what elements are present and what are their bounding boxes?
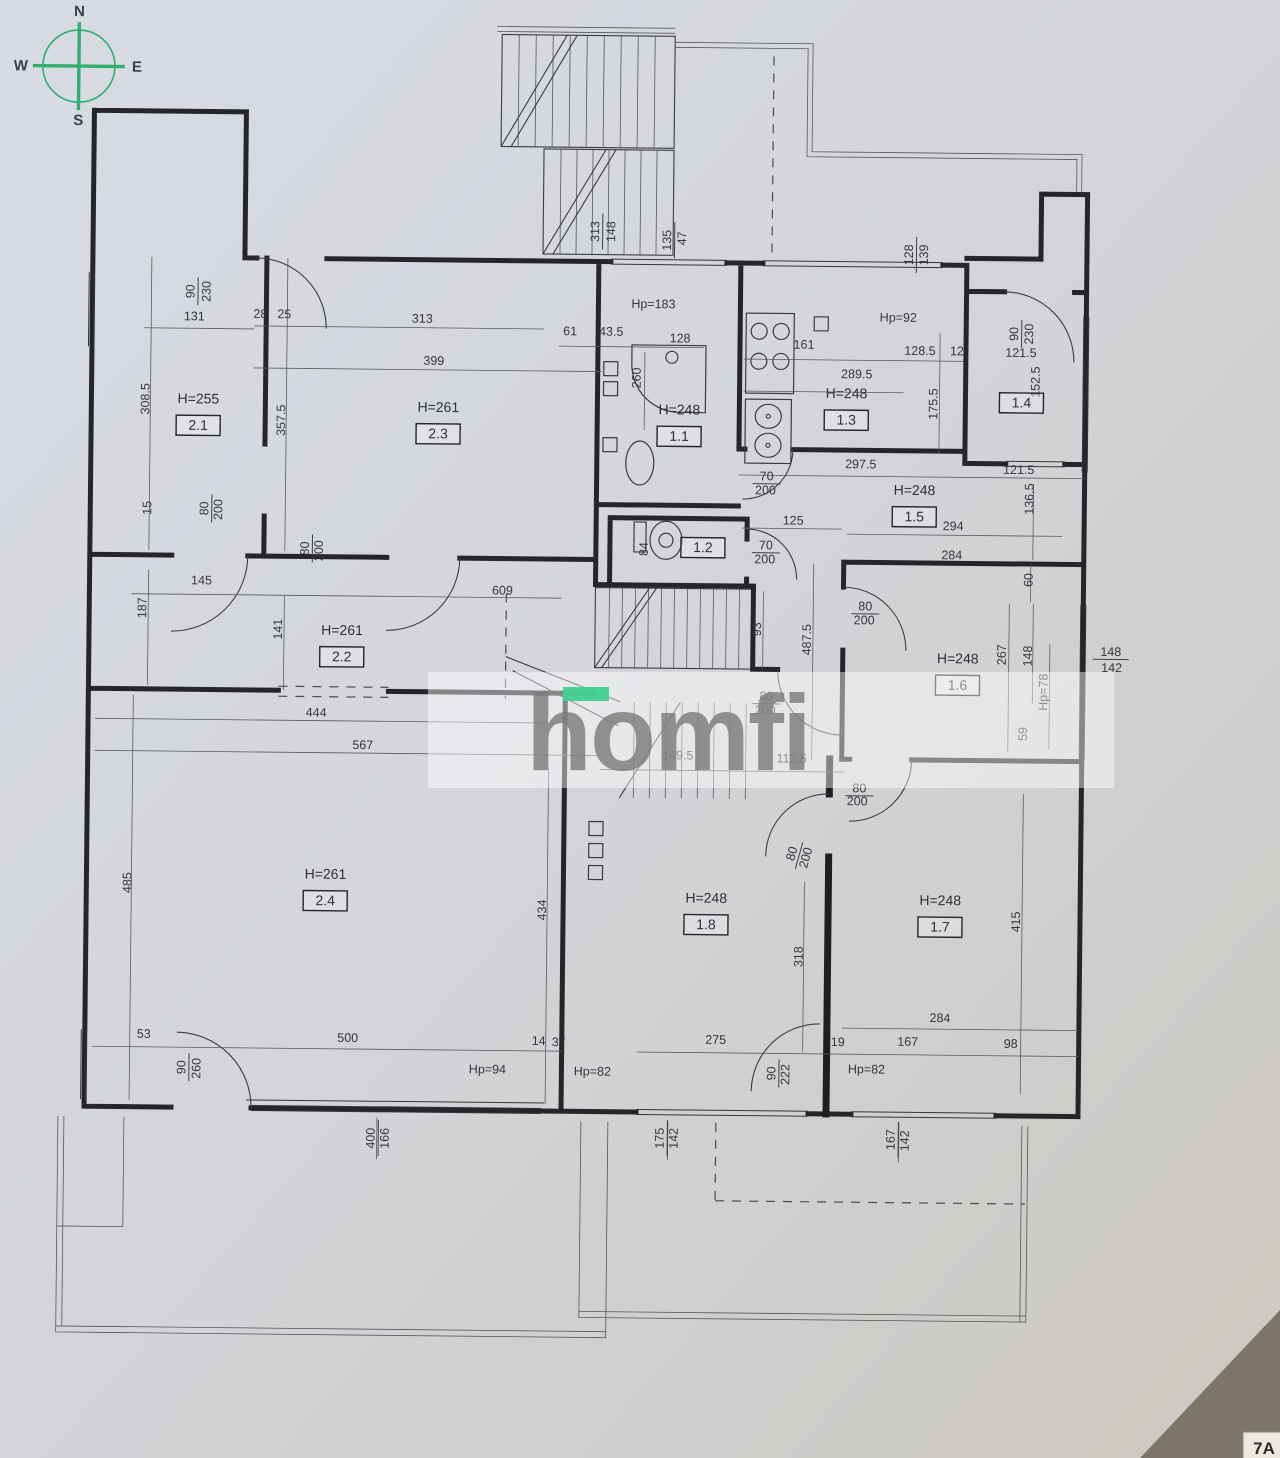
dim-label: 12 [950, 344, 964, 358]
dim-label: 25 [277, 307, 291, 321]
dim-label: 19 [831, 1035, 845, 1049]
dim-label: 230 [199, 281, 213, 302]
room-number: 2.2 [332, 648, 352, 664]
dim-label: 128.5 [904, 344, 935, 358]
dim-label: 125 [783, 513, 804, 527]
dim-label: 148 [1021, 646, 1035, 667]
dim-label: 136.5 [1022, 483, 1036, 514]
dim-label: 294 [943, 519, 964, 533]
compass-east: E [132, 59, 142, 76]
dim-label: 128 [670, 331, 691, 345]
dim-label: 297.5 [845, 457, 876, 471]
dim-label: 318 [792, 946, 806, 967]
compass-west: W [14, 57, 29, 74]
dim-label: 161 [794, 338, 815, 352]
dim-label: 609 [492, 583, 513, 597]
dim-label: Hp=82 [848, 1062, 885, 1076]
dim-label: 90 [1007, 327, 1021, 341]
dim-label: 148 [604, 221, 618, 242]
floor-plan-canvas: N S W E [0, 0, 1280, 1458]
dim-label: 14 [532, 1034, 546, 1048]
compass-south: S [73, 112, 83, 129]
dim-label: 415 [1009, 911, 1023, 932]
dim-label: 128 [902, 244, 916, 265]
dim-label: 313 [588, 221, 602, 242]
dim-label: 145 [191, 573, 212, 587]
dim-label: 15 [140, 501, 154, 515]
dim-label: 70 [760, 469, 774, 483]
dim-label: 313 [412, 312, 433, 326]
dim-label: 166 [378, 1128, 392, 1149]
dim-label: 98 [1004, 1037, 1018, 1051]
room-height-label: H=261 [321, 622, 363, 638]
dim-label: 567 [352, 738, 373, 752]
dim-label: 61 [563, 324, 577, 338]
dim-label: 187 [135, 597, 149, 618]
dim-label: 148 [1100, 645, 1121, 659]
room-number: 2.3 [428, 425, 448, 441]
dim-label: 141 [271, 619, 285, 640]
dim-label: 230 [1022, 324, 1036, 345]
dim-label: 84 [637, 542, 651, 556]
dim-label: 121.5 [1005, 346, 1036, 360]
dim-label: 275 [705, 1033, 726, 1047]
dim-label: 400 [364, 1128, 378, 1149]
dim-label: 135 [660, 230, 674, 251]
room-height-label: H=248 [826, 385, 868, 401]
dim-label: 357.5 [274, 404, 288, 435]
dim-label: 80 [197, 501, 211, 515]
dim-label: 43.5 [599, 325, 624, 339]
room-number: 2.1 [188, 417, 208, 433]
dim-label: 434 [535, 899, 549, 920]
dim-label: 167 [884, 1129, 898, 1150]
dim-label: 90 [174, 1060, 188, 1074]
dim-label: 175.5 [926, 388, 940, 419]
dim-label: 80 [298, 541, 312, 555]
dim-label: 80 [858, 599, 872, 613]
dim-label: 53 [137, 1027, 151, 1041]
room-number: 1.3 [836, 412, 856, 428]
dim-label: 260 [189, 1058, 203, 1079]
dim-label: 487.5 [800, 624, 814, 655]
sheet-number: 7A [1253, 1439, 1275, 1458]
watermark: homfi [428, 672, 1114, 793]
room-height-label: H=255 [178, 390, 220, 406]
room-height-label: H=261 [417, 399, 459, 415]
dim-label: 200 [754, 552, 775, 566]
dim-label: 121.5 [1003, 463, 1034, 477]
room-number: 1.8 [696, 916, 716, 932]
dim-label: Hp=94 [469, 1062, 506, 1076]
dim-label: 200 [854, 613, 875, 627]
dim-label: 93 [750, 622, 764, 636]
dim-label: 444 [306, 705, 327, 719]
dim-label: 308.5 [138, 383, 152, 414]
dim-label: 28 [253, 307, 267, 321]
dim-label: 267 [995, 644, 1009, 665]
dim-label: Hp=82 [574, 1064, 611, 1078]
dim-label: 485 [120, 872, 134, 893]
dim-label: 47 [675, 231, 689, 245]
dim-label: 142 [898, 1130, 912, 1151]
room-number: 2.4 [315, 892, 335, 908]
dim-label: 37 [552, 1035, 566, 1049]
dim-label: 500 [337, 1031, 358, 1045]
dim-label: 284 [941, 548, 962, 562]
dim-label: 222 [778, 1064, 792, 1085]
dim-label: 175 [653, 1128, 667, 1149]
dim-label: 200 [211, 499, 225, 520]
room-number: 1.1 [669, 428, 689, 444]
room-height-label: H=248 [919, 892, 961, 908]
dim-label: 284 [929, 1011, 950, 1025]
dim-label: Hp=183 [631, 297, 675, 311]
room-number: 1.7 [930, 919, 950, 935]
room-height-label: H=261 [305, 865, 347, 881]
dim-label: 289.5 [841, 367, 872, 381]
dim-label: 399 [423, 354, 444, 368]
room-number: 1.5 [904, 508, 924, 524]
dim-label: 200 [847, 794, 868, 808]
dim-label: 142 [667, 1128, 681, 1149]
dim-label: 131 [184, 309, 205, 323]
dim-label: 200 [755, 483, 776, 497]
dim-label: 60 [1022, 573, 1036, 587]
room-number: 1.2 [693, 539, 713, 555]
room-number: 1.4 [1012, 394, 1032, 410]
watermark-accent-bar [563, 687, 609, 701]
room-height-label: H=248 [658, 401, 700, 417]
dim-label: 260 [630, 367, 644, 388]
room-height-label: H=248 [685, 889, 727, 905]
dim-label: 90 [764, 1066, 778, 1080]
room-height-label: H=248 [894, 482, 936, 498]
dim-label: 139 [917, 244, 931, 265]
room-height-label: H=248 [937, 650, 979, 666]
compass-north: N [74, 3, 85, 20]
dim-label: Hp=92 [880, 310, 917, 324]
dim-label: 70 [759, 538, 773, 552]
dim-label: 200 [312, 540, 326, 561]
dim-label: 90 [183, 284, 197, 298]
dim-label: 167 [897, 1035, 918, 1049]
